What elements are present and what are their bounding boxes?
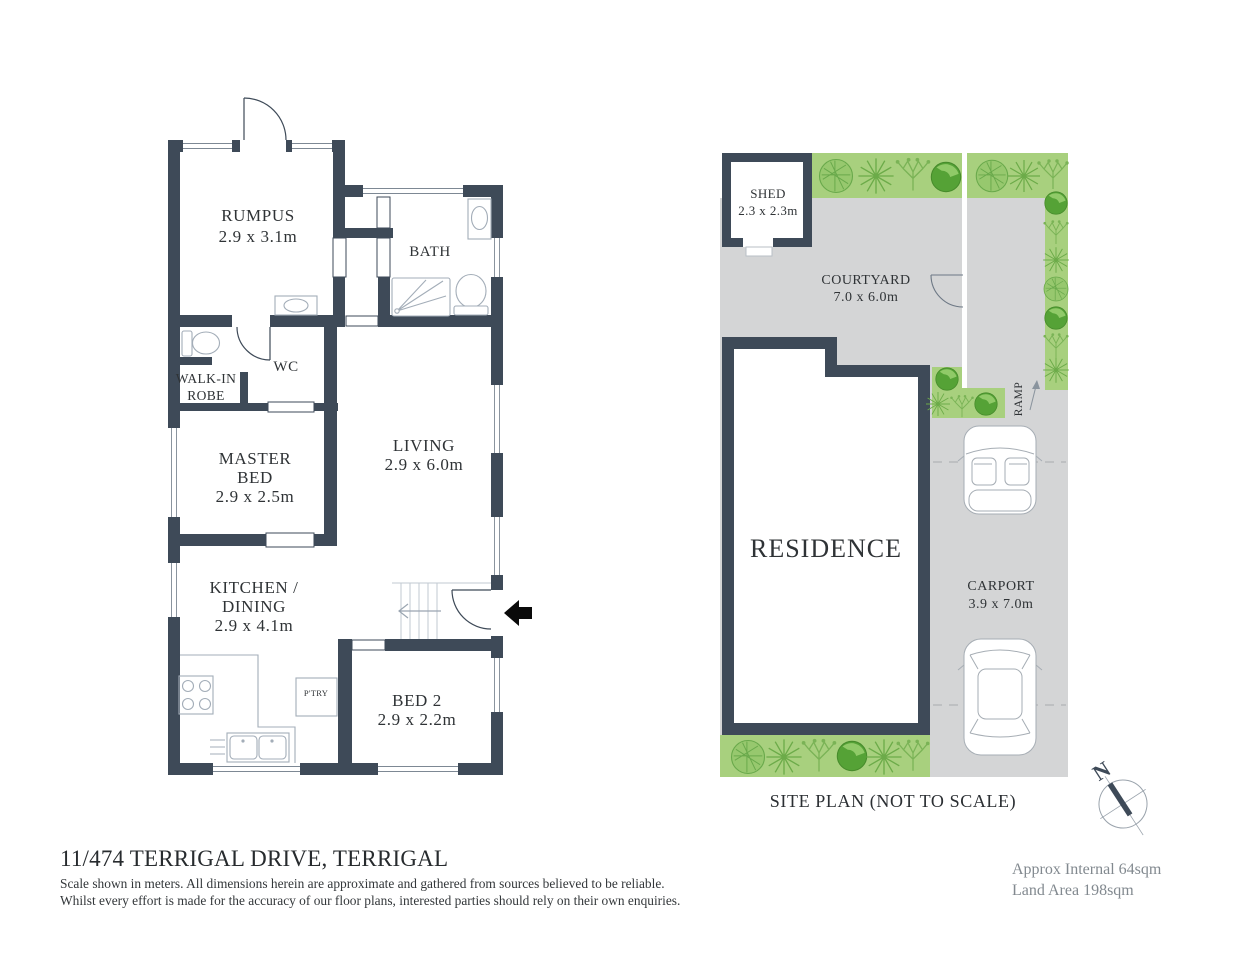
- pantry-label: P'TRY: [304, 688, 328, 698]
- rumpus-label: RUMPUS: [221, 206, 295, 225]
- ramp-paving: [967, 198, 1045, 390]
- staircase: [392, 583, 491, 639]
- living-label: LIVING: [393, 436, 455, 455]
- courtyard-dims: 7.0 x 6.0m: [834, 290, 899, 305]
- address-title: 11/474 TERRIGAL DRIVE, TERRIGAL: [60, 846, 448, 871]
- rumpus-dims: 2.9 x 3.1m: [219, 227, 298, 246]
- carport-dims: 3.9 x 7.0m: [969, 597, 1034, 612]
- disclaimer-line2: Whilst every effort is made for the accu…: [60, 893, 680, 908]
- compass-icon: N: [1072, 746, 1166, 850]
- land-area: Land Area 198sqm: [1012, 882, 1134, 899]
- floor-plan: RUMPUS 2.9 x 3.1m BATH WC WALK-IN ROBE M…: [168, 98, 532, 775]
- compass-north-label: N: [1088, 756, 1115, 786]
- sedan-car: [958, 639, 1042, 755]
- robe-label-line2: ROBE: [187, 388, 225, 403]
- kitchen-label-line1: KITCHEN /: [210, 578, 299, 597]
- bath-toilet: [454, 275, 488, 316]
- floorplan-page: RUMPUS 2.9 x 3.1m BATH WC WALK-IN ROBE M…: [0, 0, 1242, 960]
- bath-basin: [468, 199, 491, 239]
- wc-label: WC: [273, 359, 298, 375]
- site-plan-caption: SITE PLAN (NOT TO SCALE): [770, 791, 1016, 812]
- rumpus-vanity: [275, 296, 317, 315]
- carport-label: CARPORT: [967, 579, 1034, 594]
- ramp-label: RAMP: [1013, 382, 1025, 417]
- shower: [392, 278, 450, 316]
- master-label-line2: BED: [237, 468, 273, 487]
- approx-internal-area: Approx Internal 64sqm: [1012, 861, 1162, 878]
- kitchen-dims: 2.9 x 4.1m: [215, 616, 294, 635]
- wc-toilet: [182, 331, 220, 356]
- bath-label: BATH: [409, 244, 451, 260]
- residence-label: RESIDENCE: [750, 534, 902, 563]
- site-plan: SHED 2.3 x 2.3m COURTYARD 7.0 x 6.0m RES…: [720, 153, 1166, 850]
- shed-dims: 2.3 x 2.3m: [738, 203, 798, 218]
- robe-label-line1: WALK-IN: [176, 371, 237, 386]
- master-label-line1: MASTER: [219, 449, 292, 468]
- disclaimer-line1: Scale shown in meters. All dimensions he…: [60, 876, 665, 891]
- fence-line: [962, 153, 967, 388]
- footer: 11/474 TERRIGAL DRIVE, TERRIGAL Scale sh…: [60, 846, 1162, 908]
- courtyard-label: COURTYARD: [821, 273, 910, 288]
- kitchen-sink: [210, 733, 289, 762]
- shed-label: SHED: [750, 186, 786, 201]
- entry-arrow-icon: [504, 600, 532, 626]
- convertible-car: [958, 426, 1042, 514]
- kitchen-label-line2: DINING: [222, 597, 286, 616]
- master-dims: 2.9 x 2.5m: [216, 487, 295, 506]
- bed2-dims: 2.9 x 2.2m: [378, 710, 457, 729]
- bed2-label: BED 2: [392, 691, 442, 710]
- living-dims: 2.9 x 6.0m: [385, 455, 464, 474]
